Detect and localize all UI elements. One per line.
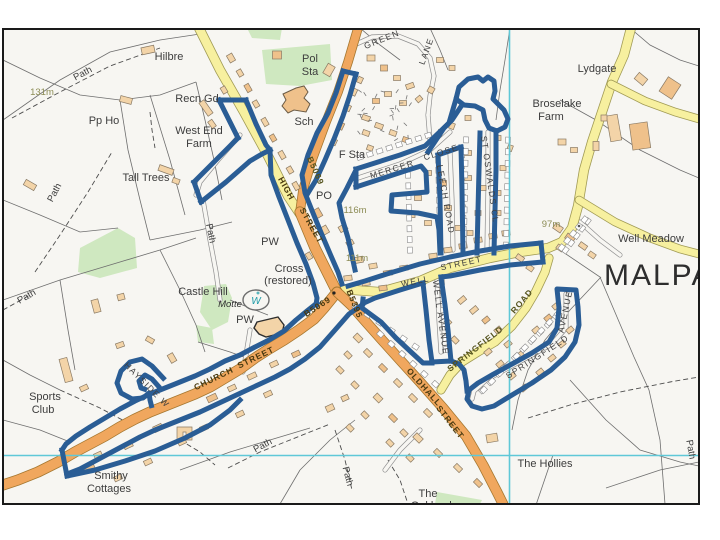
svg-text:The Hollies: The Hollies xyxy=(517,458,573,470)
svg-text:F Sta: F Sta xyxy=(339,149,366,161)
svg-text:Recn Gd: Recn Gd xyxy=(175,93,218,105)
svg-text:131m: 131m xyxy=(30,87,54,98)
svg-text:PO: PO xyxy=(316,190,332,202)
svg-text:Sports: Sports xyxy=(29,391,61,403)
svg-text:Tall Trees: Tall Trees xyxy=(122,172,170,184)
svg-text:Farm: Farm xyxy=(186,138,212,150)
svg-text:Hilbre: Hilbre xyxy=(155,51,184,63)
svg-text:Sch: Sch xyxy=(295,116,314,128)
svg-text:(restored): (restored) xyxy=(264,275,312,287)
svg-text:116m: 116m xyxy=(343,205,366,216)
svg-text:The: The xyxy=(419,488,438,500)
svg-text:Cottages: Cottages xyxy=(87,483,132,495)
svg-text:Smithy: Smithy xyxy=(94,470,128,482)
svg-text:Motte: Motte xyxy=(218,299,242,310)
svg-text:Lydgate: Lydgate xyxy=(578,63,617,75)
svg-text:Broselake: Broselake xyxy=(533,98,582,110)
svg-text:Pp Ho: Pp Ho xyxy=(89,115,120,127)
svg-text:Castle Hill: Castle Hill xyxy=(178,286,228,298)
svg-text:97m: 97m xyxy=(542,219,561,230)
svg-text:Well Meadow: Well Meadow xyxy=(618,233,684,245)
svg-text:Farm: Farm xyxy=(538,111,564,123)
svg-text:Sta: Sta xyxy=(302,66,319,78)
svg-text:Cross: Cross xyxy=(275,263,304,275)
svg-text:West End: West End xyxy=(175,125,223,137)
svg-text:W: W xyxy=(251,296,262,307)
svg-text:PW: PW xyxy=(236,314,254,326)
svg-text:111m: 111m xyxy=(346,253,368,264)
svg-text:Club: Club xyxy=(32,404,55,416)
svg-text:PW: PW xyxy=(261,236,279,248)
svg-text:Pol: Pol xyxy=(302,53,318,65)
